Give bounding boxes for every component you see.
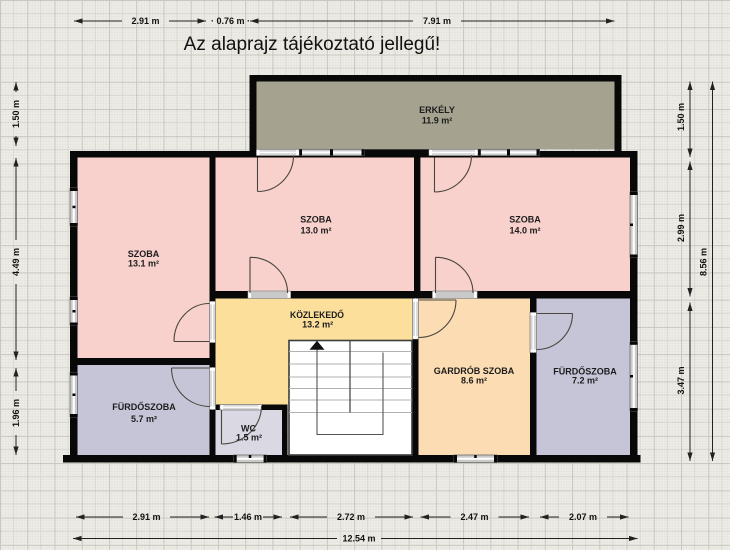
svg-text:2.07 m: 2.07 m <box>569 512 597 522</box>
svg-text:1.50 m: 1.50 m <box>676 103 686 131</box>
svg-text:1.46 m: 1.46 m <box>234 512 262 522</box>
svg-text:Az alaprajz tájékoztató jelleg: Az alaprajz tájékoztató jellegű! <box>184 34 441 55</box>
svg-text:1.50 m: 1.50 m <box>11 100 21 128</box>
svg-text:2.47 m: 2.47 m <box>460 512 488 522</box>
svg-text:ERKÉLY: ERKÉLY <box>419 105 455 115</box>
svg-text:5.7 m²: 5.7 m² <box>131 414 157 424</box>
svg-text:3.47 m: 3.47 m <box>676 366 686 394</box>
svg-text:8.6 m²: 8.6 m² <box>461 376 487 386</box>
svg-text:8.56 m: 8.56 m <box>699 248 709 276</box>
svg-text:2.91 m: 2.91 m <box>132 512 160 522</box>
svg-text:SZOBA: SZOBA <box>509 215 541 225</box>
svg-text:7.91 m: 7.91 m <box>423 16 451 26</box>
svg-text:GARDRÓB SZOBA: GARDRÓB SZOBA <box>434 365 515 376</box>
svg-text:14.0 m²: 14.0 m² <box>509 226 540 236</box>
svg-text:KÖZLEKEDŐ: KÖZLEKEDŐ <box>290 309 344 320</box>
svg-text:SZOBA: SZOBA <box>128 249 160 259</box>
svg-text:13.1 m²: 13.1 m² <box>128 259 159 269</box>
svg-text:11.9 m²: 11.9 m² <box>422 116 453 126</box>
svg-text:FÜRDŐSZOBA: FÜRDŐSZOBA <box>112 401 176 412</box>
svg-text:1.5 m²: 1.5 m² <box>236 433 262 443</box>
svg-text:13.0 m²: 13.0 m² <box>300 226 331 236</box>
svg-text:4.49 m: 4.49 m <box>11 248 21 276</box>
svg-text:SZOBA: SZOBA <box>300 215 332 225</box>
svg-text:12.54 m: 12.54 m <box>342 534 375 544</box>
svg-text:2.99 m: 2.99 m <box>676 214 686 242</box>
svg-text:1.96 m: 1.96 m <box>11 399 21 427</box>
svg-text:2.91 m: 2.91 m <box>131 16 159 26</box>
svg-text:2.72 m: 2.72 m <box>337 512 365 522</box>
svg-text:· 0.76 m ·: · 0.76 m · <box>211 16 250 26</box>
svg-text:7.2 m²: 7.2 m² <box>572 376 598 386</box>
svg-text:13.2 m²: 13.2 m² <box>302 320 333 330</box>
